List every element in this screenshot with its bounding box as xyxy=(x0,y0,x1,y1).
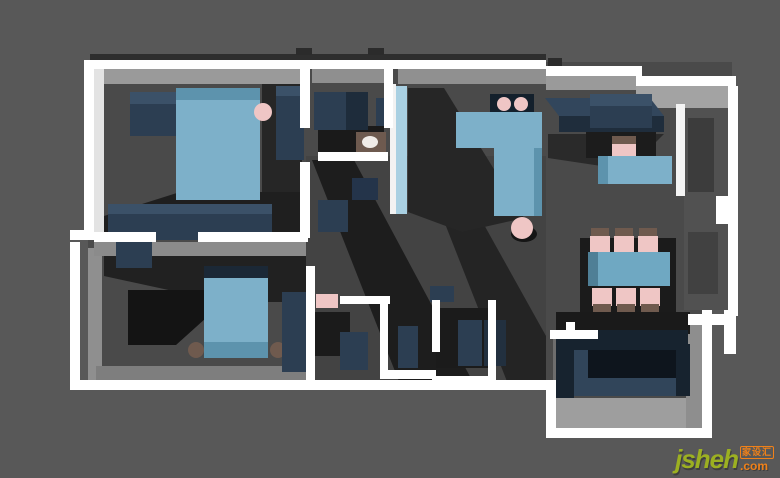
watermark-tld-text: .com xyxy=(740,460,768,472)
wall-corridor-1 xyxy=(380,300,388,378)
wall-corridor-6 xyxy=(432,376,492,384)
corridor-fixture-2 xyxy=(352,178,378,200)
dining-chair-seat-t1 xyxy=(590,236,610,252)
wall-media-right xyxy=(702,310,712,438)
bath2-towel-pink xyxy=(316,294,338,308)
ottoman-pink xyxy=(511,217,533,239)
wall-vertical-1c xyxy=(306,266,315,384)
wall-left-lower xyxy=(70,242,80,388)
bedroom1-wardrobe xyxy=(276,96,304,160)
desk xyxy=(598,156,672,184)
shadow-right-column-b xyxy=(688,232,718,294)
dining-chair-seat-b2 xyxy=(616,288,636,306)
bath1-sink xyxy=(362,136,378,148)
watermark-right-block: 家设汇 .com xyxy=(740,446,774,472)
wall-top-c xyxy=(636,76,736,86)
wall-vertical-1b xyxy=(300,162,310,238)
living-sofa-chaise-side xyxy=(534,148,542,216)
floorplan-svg xyxy=(0,0,780,478)
watermark: jsheh 家设汇 .com xyxy=(675,446,774,472)
bedroom1-bed xyxy=(176,100,260,200)
dining-chair-foot-b2 xyxy=(617,304,635,312)
dining-chair-foot-b3 xyxy=(641,304,659,312)
media-sofa-pit xyxy=(588,350,676,378)
wall-corridor-3 xyxy=(432,300,440,352)
desk-side-face xyxy=(598,156,608,184)
dining-chair-seat-b3 xyxy=(640,288,660,306)
roofline-strip xyxy=(90,54,546,61)
desk-cabinet xyxy=(590,106,652,128)
page: { "meta": { "description": "3D rendered … xyxy=(0,0,780,478)
bedroom2-wardrobe xyxy=(116,242,152,268)
bath1-unit-dark xyxy=(346,92,368,130)
living-sofa-back xyxy=(456,112,542,148)
wall-left-upper xyxy=(84,60,94,238)
wall-bath-right xyxy=(384,66,393,128)
wall-right-upper xyxy=(728,86,738,198)
dining-table xyxy=(588,252,670,286)
sofa-cushion-1 xyxy=(497,97,511,111)
desk-cabinet-top xyxy=(590,94,652,106)
floorplan-rendering xyxy=(0,0,780,478)
glass-partition xyxy=(396,86,407,214)
media-sofa-right-arm xyxy=(676,344,690,396)
wall-top-b xyxy=(546,66,642,76)
media-sofa-seat-bottom xyxy=(574,378,688,396)
wall-media-door-b xyxy=(566,322,575,339)
dining-chair-back-t1 xyxy=(591,228,609,237)
bedroom2-bed xyxy=(204,278,268,342)
wall-corridor-4 xyxy=(488,300,496,384)
roof-notch-1 xyxy=(296,48,312,55)
dining-table-side xyxy=(588,252,598,286)
roof-notch-2 xyxy=(368,48,384,55)
sofa-cushion-2 xyxy=(514,97,528,111)
wall-media-bottom xyxy=(546,428,712,438)
dining-chair-seat-t2 xyxy=(614,236,634,252)
bedroom1-cabinet xyxy=(130,104,178,136)
bath3-fixture-2 xyxy=(458,320,482,366)
wall-face-left-bedroom2 xyxy=(88,248,102,382)
watermark-brand-text: jsheh xyxy=(675,446,738,472)
corridor-fixture-1 xyxy=(318,200,348,232)
wall-bath-bottom xyxy=(318,152,388,161)
wall-right-step xyxy=(716,196,738,224)
bedroom2-bed-headboard xyxy=(204,266,268,278)
dining-chair-back-t2 xyxy=(615,228,633,237)
wall-face-media-bottom xyxy=(556,398,702,428)
dining-chair-foot-b1 xyxy=(593,304,611,312)
bedroom1-sofa-back xyxy=(108,204,272,214)
bedroom2-bed-foot xyxy=(204,342,268,358)
wall-corridor-2 xyxy=(380,370,436,379)
bedroom1-bed-headboard xyxy=(176,88,260,100)
wall-face-top-living xyxy=(398,69,546,84)
dining-chair-seat-b1 xyxy=(592,288,612,306)
wall-face-top-right-a xyxy=(546,76,636,90)
shadow-right-column-a xyxy=(688,118,714,192)
roof-notch-3 xyxy=(548,58,562,66)
wall-face-top-bath xyxy=(312,69,386,83)
wall-divider-b xyxy=(198,232,308,242)
bath2-fixture xyxy=(340,332,368,370)
wall-vertical-1a xyxy=(300,66,310,128)
bedroom2-cabinet-tall xyxy=(282,292,306,372)
wall-media-topstep-b xyxy=(724,310,736,354)
wall-divider-a xyxy=(94,232,156,242)
media-sofa-left-arm xyxy=(556,350,574,398)
dining-chair-seat-t3 xyxy=(638,236,658,252)
wall-face-top-bedroom1 xyxy=(92,69,300,84)
bedroom1-wardrobe-top xyxy=(276,86,304,96)
bath3-fixture-1 xyxy=(398,326,418,368)
wall-right-lower xyxy=(728,222,738,316)
dining-chair-back-t3 xyxy=(639,228,657,237)
bedroom1-cabinet-top xyxy=(130,92,178,104)
bedroom2-stool-left xyxy=(188,342,204,358)
bedroom1-stool xyxy=(254,103,272,121)
wall-bottom-a xyxy=(70,380,320,390)
interior-wall-strip xyxy=(676,104,685,196)
wall-left-step xyxy=(70,230,94,240)
wall-top-a xyxy=(84,60,546,69)
watermark-cjk-text: 家设汇 xyxy=(740,446,774,459)
corridor-bench xyxy=(430,286,454,302)
wall-corridor-5 xyxy=(340,296,390,304)
